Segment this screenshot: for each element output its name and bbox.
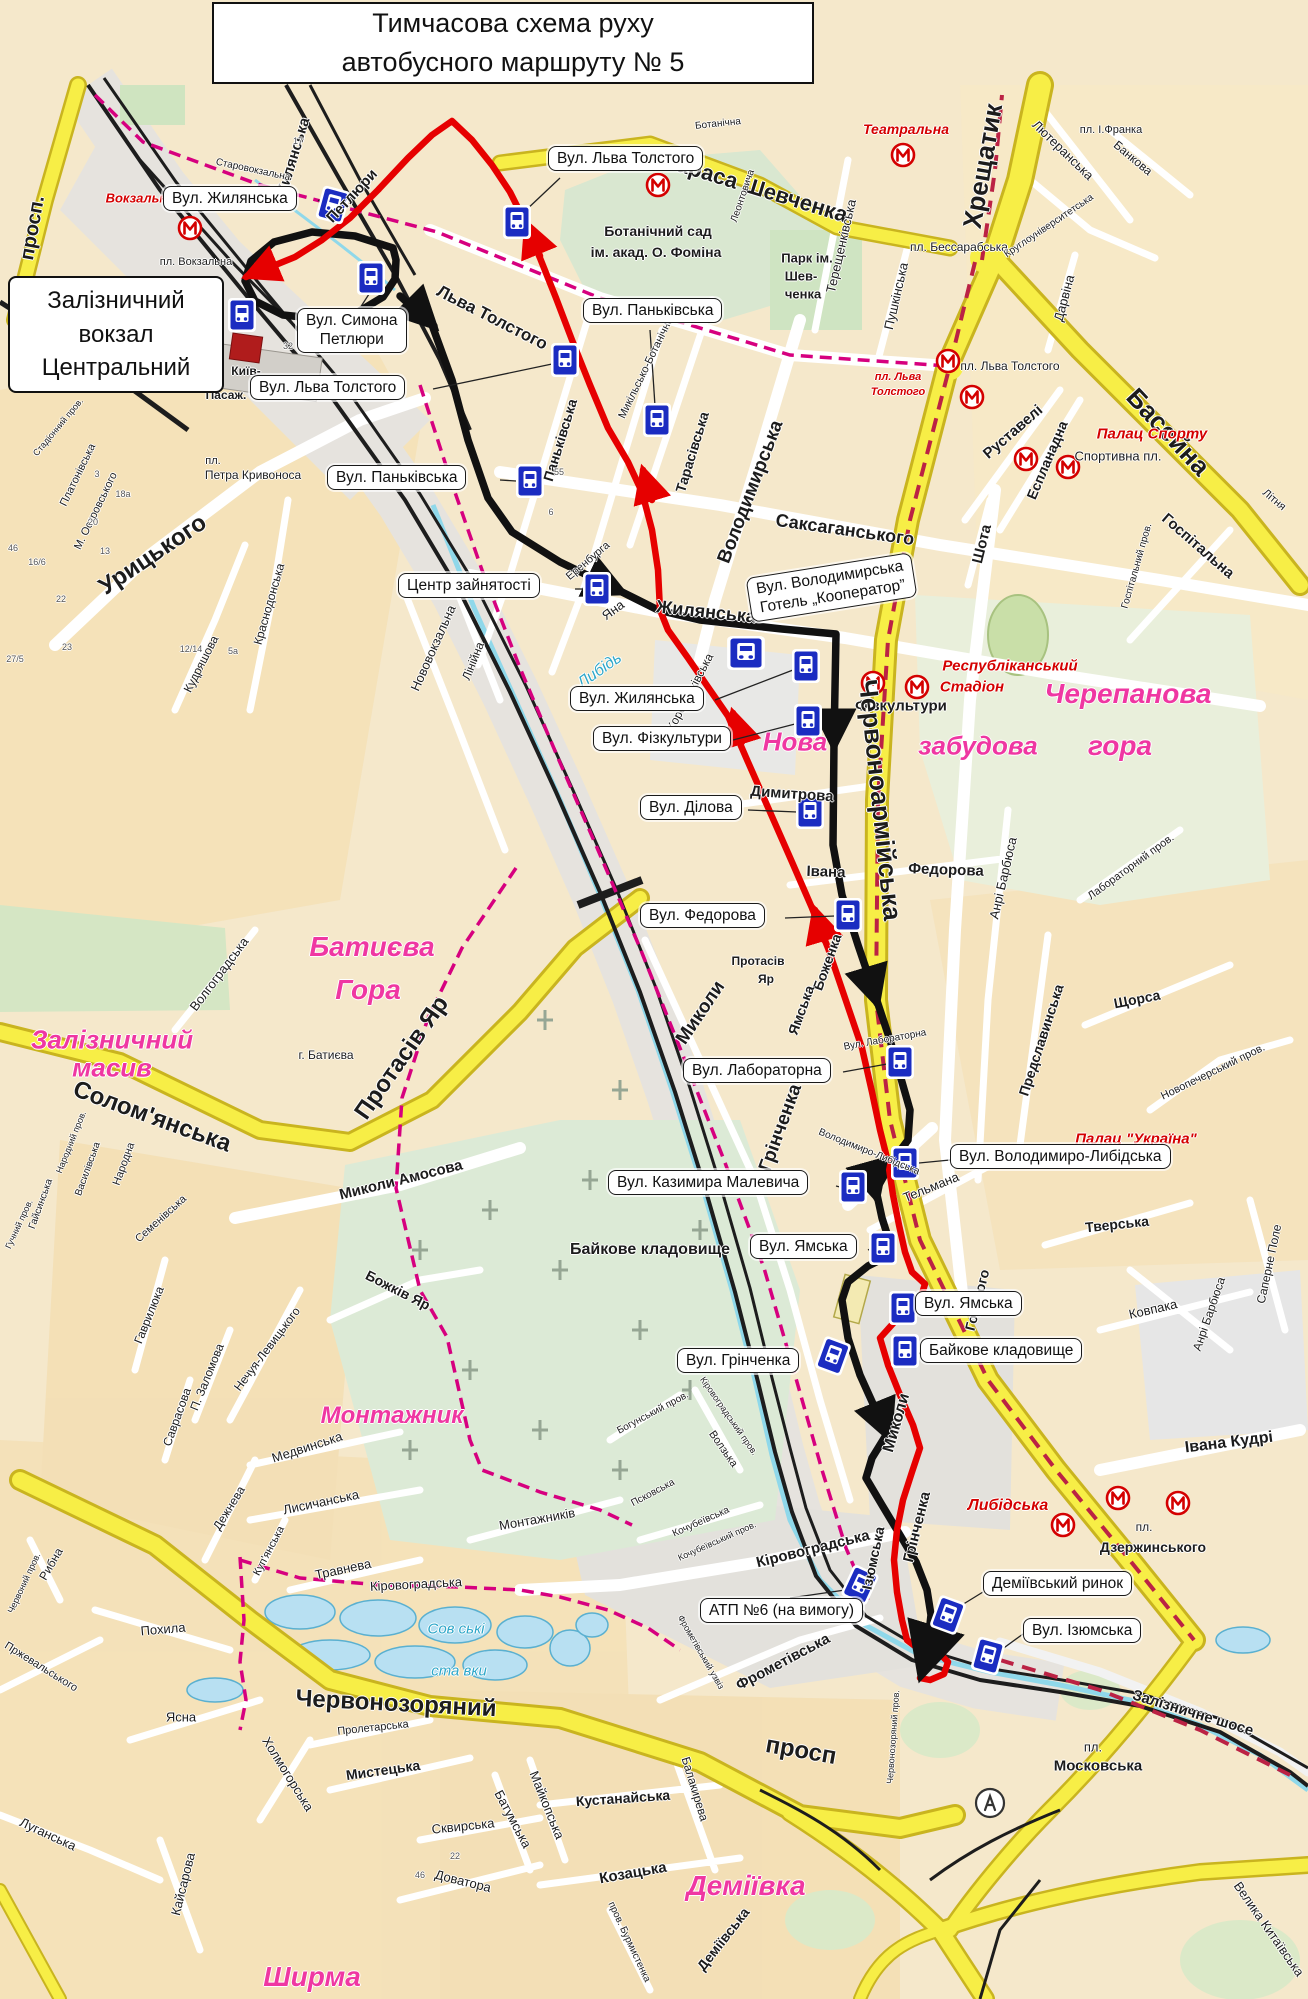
- bus-stop-icon: [228, 298, 256, 332]
- bus-stop-icon: [796, 795, 824, 829]
- bus-stop-icon: [551, 343, 579, 377]
- metro-icon: [1057, 456, 1079, 478]
- station-label-line3: Центральний: [14, 351, 218, 385]
- roundabout-a-marker: [976, 1789, 1004, 1817]
- metro-icon: [1015, 448, 1037, 470]
- bus-stop-icon: [839, 1170, 867, 1204]
- metro-icon: [961, 386, 983, 408]
- bus-stop-icon: [891, 1146, 919, 1180]
- metro-icon: [906, 676, 928, 698]
- railway-station-label: Залізничний вокзал Центральний: [8, 276, 224, 393]
- bus-stop-icon: [869, 1231, 897, 1265]
- bus-stop-icon: [357, 261, 385, 295]
- metro-icon: [1167, 1492, 1189, 1514]
- bus-stop-icon: [889, 1291, 917, 1325]
- map-container[interactable]: ЖилянськаПетлюриЛьва ТолстогоСтаровокзал…: [0, 0, 1308, 1999]
- bus-stop-icon: [792, 649, 820, 683]
- bus-stop-icon: [886, 1045, 914, 1079]
- metro-icon: [937, 350, 959, 372]
- station-label-line2: вокзал: [14, 318, 218, 352]
- metro-icon: [1052, 1514, 1074, 1536]
- bus-stop-icon: [891, 1334, 919, 1368]
- bus-stop-icon: [794, 704, 822, 738]
- map-title-line1: Тимчасова схема руху: [372, 4, 653, 43]
- station-label-line1: Залізничний: [14, 284, 218, 318]
- bus-stop-icon: [516, 464, 544, 498]
- bus-stop-icon: [643, 403, 671, 437]
- map-title: Тимчасова схема руху автобусного маршрут…: [212, 2, 814, 84]
- bus-stop-icon: [727, 636, 765, 670]
- map-title-line2: автобусного маршруту № 5: [342, 43, 685, 82]
- bus-stop-icon: [834, 898, 862, 932]
- bus-stop-icon: [503, 205, 531, 239]
- metro-icon: [892, 144, 914, 166]
- metro-icon: [862, 672, 884, 694]
- bus-stop-icon: [583, 572, 611, 606]
- metro-icon: [647, 174, 669, 196]
- metro-icon: [1107, 1487, 1129, 1509]
- metro-icon: [179, 217, 201, 239]
